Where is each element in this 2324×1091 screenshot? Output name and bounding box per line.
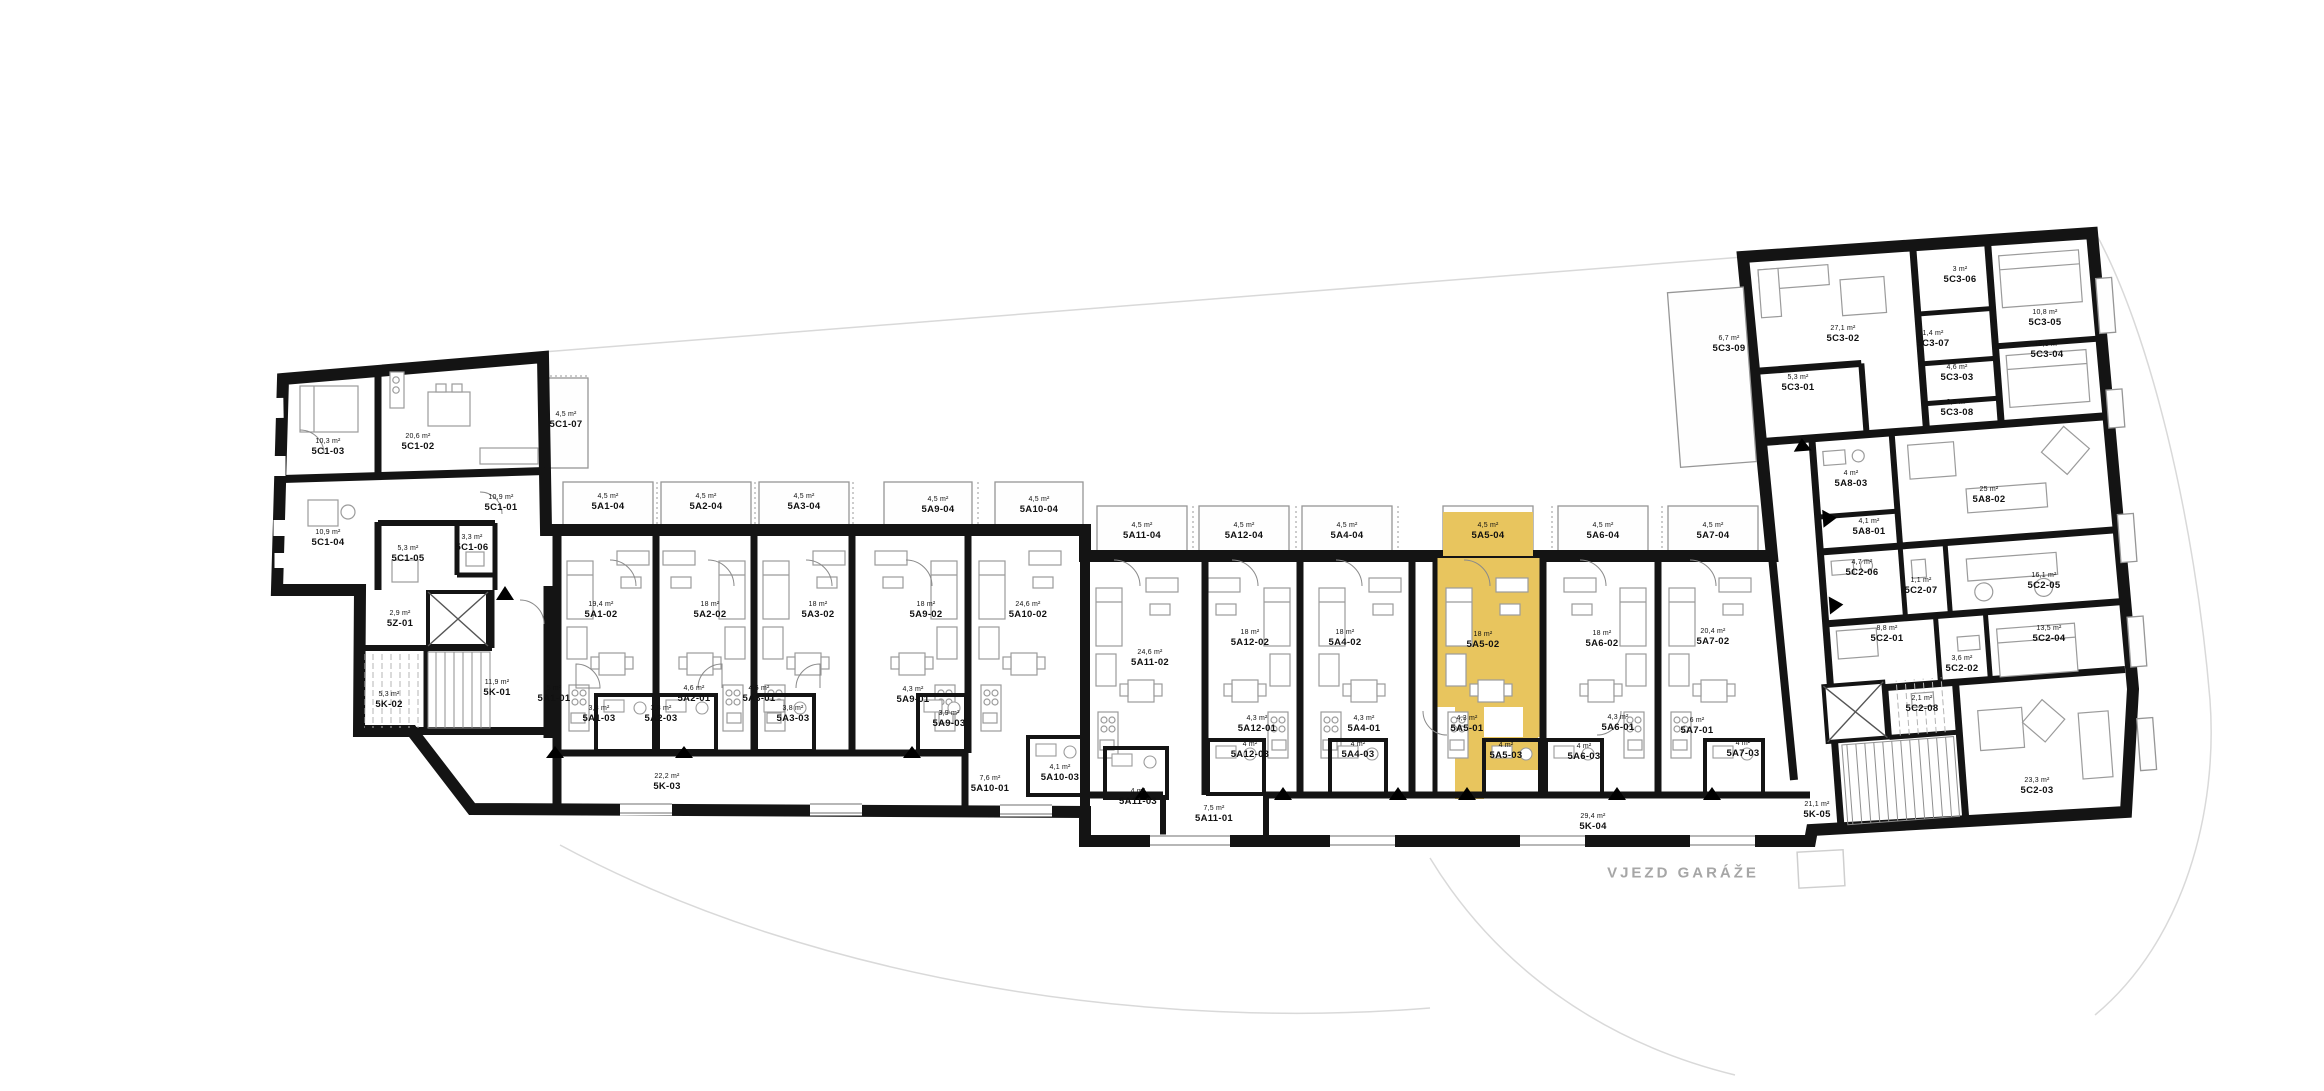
unit-code: 5A8-03 <box>1835 478 1868 489</box>
unit-area: 4,6 m² <box>748 685 769 693</box>
unit-area: 19,4 m² <box>588 601 613 609</box>
unit-label-5A6-03[interactable]: 4 m²5A6-03 <box>1568 743 1601 762</box>
unit-code: 5A5-01 <box>1451 723 1484 734</box>
unit-area: 24,6 m² <box>1137 649 1162 657</box>
unit-code: 5C1-02 <box>402 441 435 452</box>
unit-area: 20,6 m² <box>405 433 430 441</box>
unit-label-5C2-06[interactable]: 4,7 m²5C2-06 <box>1846 559 1879 578</box>
unit-code: 5A5-04 <box>1472 530 1505 541</box>
unit-label-5C3-02[interactable]: 27,1 m²5C3-02 <box>1827 325 1860 344</box>
unit-label-5A12-02[interactable]: 18 m²5A12-02 <box>1231 629 1270 648</box>
unit-code: 5A11-01 <box>1195 813 1233 824</box>
unit-code: 5C2-07 <box>1905 585 1938 596</box>
unit-area: 4,5 m² <box>1477 522 1498 530</box>
unit-label-5C3-08[interactable]: 2,6 m²5C3-08 <box>1941 399 1974 418</box>
unit-code: 5C3-05 <box>2029 317 2062 328</box>
unit-area: 18 m² <box>809 601 828 609</box>
unit-area: 18 m² <box>701 601 720 609</box>
unit-area: 4,1 m² <box>1049 764 1070 772</box>
unit-label-5K-02[interactable]: 5,3 m²5K-02 <box>375 691 402 710</box>
unit-area: 1,1 m² <box>1910 577 1931 585</box>
unit-area: 4 m² <box>1736 740 1751 748</box>
unit-code: 5A6-01 <box>1602 722 1635 733</box>
unit-label-5A9-03[interactable]: 3,9 m²5A9-03 <box>933 710 966 729</box>
unit-area: 10,3 m² <box>315 438 340 446</box>
unit-code: 5A12-04 <box>1225 530 1264 541</box>
unit-label-5A8-02[interactable]: 25 m²5A8-02 <box>1973 486 2006 505</box>
unit-label-5A6-01[interactable]: 4,3 m²5A6-01 <box>1602 714 1635 733</box>
unit-label-5A3-01[interactable]: 4,6 m²5A3-01 <box>743 685 776 704</box>
unit-label-5A4-03[interactable]: 4 m²5A4-03 <box>1342 741 1375 760</box>
unit-label-5C1-03[interactable]: 10,3 m²5C1-03 <box>312 438 345 457</box>
unit-code: 5A6-02 <box>1586 638 1619 649</box>
unit-code: 5A1-02 <box>585 609 618 620</box>
unit-label-5C2-07[interactable]: 1,1 m²5C2-07 <box>1905 577 1938 596</box>
unit-code: 5A11-02 <box>1131 657 1169 668</box>
unit-code: 5A1-04 <box>592 501 625 512</box>
unit-label-5C1-01[interactable]: 10,9 m²5C1-01 <box>485 494 518 513</box>
unit-label-5A10-02[interactable]: 24,6 m²5A10-02 <box>1009 601 1048 620</box>
unit-label-5A5-01[interactable]: 4,3 m²5A5-01 <box>1451 715 1484 734</box>
unit-label-5A9-01[interactable]: 4,3 m²5A9-01 <box>897 686 930 705</box>
unit-area: 4,1 m² <box>1858 518 1879 526</box>
unit-label-5C3-04[interactable]: 10,8 m²5C3-04 <box>2031 341 2064 360</box>
unit-label-5A2-04[interactable]: 4,5 m²5A2-04 <box>690 493 723 512</box>
unit-label-5C2-05[interactable]: 16,1 m²5C2-05 <box>2028 572 2061 591</box>
unit-label-5A9-02[interactable]: 18 m²5A9-02 <box>910 601 943 620</box>
unit-area: 4,5 m² <box>927 496 948 504</box>
unit-area: 4,3 m² <box>1607 714 1628 722</box>
unit-area: 4,5 m² <box>555 411 576 419</box>
unit-code: 5A10-04 <box>1020 504 1059 515</box>
unit-label-5A2-03[interactable]: 3,8 m²5A2-03 <box>645 705 678 724</box>
unit-label-5A7-04[interactable]: 4,5 m²5A7-04 <box>1697 522 1730 541</box>
unit-code: 5K-05 <box>1803 809 1830 820</box>
unit-label-5C3-03[interactable]: 4,6 m²5C3-03 <box>1941 364 1974 383</box>
unit-code: 5C2-03 <box>2021 785 2054 796</box>
unit-area: 3,6 m² <box>1951 655 1972 663</box>
unit-code: 5A3-02 <box>802 609 835 620</box>
unit-code: 5C3-07 <box>1917 338 1950 349</box>
unit-area: 4,6 m² <box>1946 364 1967 372</box>
unit-area: 4 m² <box>1243 741 1258 749</box>
unit-label-5A10-04[interactable]: 4,5 m²5A10-04 <box>1020 496 1059 515</box>
unit-code: 5A7-01 <box>1681 725 1714 736</box>
garage-entrance-label: VJEZD GARÁŽE <box>1607 865 1759 882</box>
unit-label-5A1-02[interactable]: 19,4 m²5A1-02 <box>585 601 618 620</box>
unit-code: 5C2-02 <box>1946 663 1979 674</box>
unit-code: 5A9-03 <box>933 718 966 729</box>
unit-label-5A3-02[interactable]: 18 m²5A3-02 <box>802 601 835 620</box>
unit-label-5A3-03[interactable]: 3,8 m²5A3-03 <box>777 705 810 724</box>
unit-code: 5C3-03 <box>1941 372 1974 383</box>
unit-code: 5A10-03 <box>1041 772 1080 783</box>
unit-code: 5C3-06 <box>1944 274 1977 285</box>
unit-code: 5A8-01 <box>1853 526 1886 537</box>
unit-area: 18 m² <box>1593 630 1612 638</box>
unit-label-5C1-05[interactable]: 5,3 m²5C1-05 <box>392 545 425 564</box>
unit-label-5A7-02[interactable]: 20,4 m²5A7-02 <box>1697 628 1730 647</box>
unit-area: 4 m² <box>1844 470 1859 478</box>
unit-area: 23,3 m² <box>2024 777 2049 785</box>
unit-label-5C2-03[interactable]: 23,3 m²5C2-03 <box>2021 777 2054 796</box>
unit-label-5K-03[interactable]: 22,2 m²5K-03 <box>653 773 680 792</box>
unit-label-5A11-03[interactable]: 4 m²5A11-03 <box>1119 788 1157 807</box>
unit-area: 18 m² <box>1336 629 1355 637</box>
unit-area: 3,8 m² <box>588 705 609 713</box>
unit-area: 20,4 m² <box>1700 628 1725 636</box>
unit-code: 5A12-03 <box>1231 749 1270 760</box>
unit-code: 5A7-04 <box>1697 530 1730 541</box>
unit-code: 5C1-05 <box>392 553 425 564</box>
unit-label-5A5-02[interactable]: 18 m²5A5-02 <box>1467 631 1500 650</box>
unit-label-5A1-04[interactable]: 4,5 m²5A1-04 <box>592 493 625 512</box>
unit-area: 8,8 m² <box>1876 625 1897 633</box>
unit-area: 5,3 m² <box>1787 374 1808 382</box>
unit-area: 21,1 m² <box>1804 801 1829 809</box>
unit-area: 4 m² <box>1499 742 1514 750</box>
unit-code: 5A9-01 <box>897 694 930 705</box>
unit-code: 5A3-04 <box>788 501 821 512</box>
unit-label-5A12-03[interactable]: 4 m²5A12-03 <box>1231 741 1270 760</box>
unit-code: 5C3-08 <box>1941 407 1974 418</box>
unit-label-5A12-04[interactable]: 4,5 m²5A12-04 <box>1225 522 1264 541</box>
unit-area: 5,3 m² <box>397 545 418 553</box>
unit-area: 3 m² <box>1953 266 1968 274</box>
unit-label-5C1-02[interactable]: 20,6 m²5C1-02 <box>402 433 435 452</box>
unit-code: 5C2-06 <box>1846 567 1879 578</box>
unit-code: 5C2-05 <box>2028 580 2061 591</box>
unit-code: 5K-01 <box>483 687 510 698</box>
unit-area: 2,1 m² <box>1911 695 1932 703</box>
unit-area: 4,5 m² <box>1028 496 1049 504</box>
unit-area: 4 m² <box>1577 743 1592 751</box>
unit-label-5C3-01[interactable]: 5,3 m²5C3-01 <box>1782 374 1815 393</box>
unit-area: 10,8 m² <box>2032 309 2057 317</box>
unit-labels-layer: 10,3 m²5C1-0320,6 m²5C1-024,5 m²5C1-0710… <box>0 0 2324 1091</box>
unit-code: 5A9-02 <box>910 609 943 620</box>
unit-label-5C2-04[interactable]: 13,5 m²5C2-04 <box>2033 625 2066 644</box>
unit-code: 5K-02 <box>375 699 402 710</box>
unit-label-5A7-01[interactable]: 6 m²5A7-01 <box>1681 717 1714 736</box>
unit-code: 5A2-03 <box>645 713 678 724</box>
unit-area: 4,3 m² <box>1456 715 1477 723</box>
unit-label-5A12-01[interactable]: 4,3 m²5A12-01 <box>1238 715 1277 734</box>
unit-label-5C1-06[interactable]: 3,3 m²5C1-06 <box>456 534 489 553</box>
unit-label-5A4-04[interactable]: 4,5 m²5A4-04 <box>1331 522 1364 541</box>
unit-label-5A5-03[interactable]: 4 m²5A5-03 <box>1490 742 1523 761</box>
unit-label-5A11-02[interactable]: 24,6 m²5A11-02 <box>1131 649 1169 668</box>
unit-area: 10,8 m² <box>2034 341 2059 349</box>
unit-area: 4,5 m² <box>1336 522 1357 530</box>
unit-code: 5A4-04 <box>1331 530 1364 541</box>
unit-code: 5K-03 <box>653 781 680 792</box>
unit-label-5A4-02[interactable]: 18 m²5A4-02 <box>1329 629 1362 648</box>
unit-label-5A10-03[interactable]: 4,1 m²5A10-03 <box>1041 764 1080 783</box>
unit-area: 27,1 m² <box>1830 325 1855 333</box>
unit-code: 5A3-01 <box>743 693 776 704</box>
unit-area: 10,9 m² <box>315 529 340 537</box>
unit-code: 5Z-01 <box>387 618 413 629</box>
unit-area: 4,5 m² <box>793 493 814 501</box>
unit-area: 24,6 m² <box>1015 601 1040 609</box>
unit-code: 5A3-03 <box>777 713 810 724</box>
unit-label-5C3-06[interactable]: 3 m²5C3-06 <box>1944 266 1977 285</box>
unit-label-5K-04[interactable]: 29,4 m²5K-04 <box>1579 813 1606 832</box>
unit-area: 4,5 m² <box>695 493 716 501</box>
unit-code: 5A6-03 <box>1568 751 1601 762</box>
unit-label-5C3-05[interactable]: 10,8 m²5C3-05 <box>2029 309 2062 328</box>
unit-code: 5C3-04 <box>2031 349 2064 360</box>
unit-label-5A8-01[interactable]: 4,1 m²5A8-01 <box>1853 518 1886 537</box>
unit-label-5A8-03[interactable]: 4 m²5A8-03 <box>1835 470 1868 489</box>
unit-area: 4,5 m² <box>1702 522 1723 530</box>
unit-area: 4,5 m² <box>1233 522 1254 530</box>
unit-code: 5A5-03 <box>1490 750 1523 761</box>
unit-area: 4,3 m² <box>1246 715 1267 723</box>
unit-area: 25 m² <box>1980 486 1999 494</box>
unit-area: 1,4 m² <box>1922 330 1943 338</box>
unit-code: 5A9-04 <box>922 504 955 515</box>
unit-code: 5C1-07 <box>550 419 583 430</box>
unit-code: 5C2-04 <box>2033 633 2066 644</box>
unit-code: 5A12-01 <box>1238 723 1277 734</box>
unit-code: 5A10-01 <box>971 783 1010 794</box>
unit-area: 4 m² <box>1131 788 1146 796</box>
unit-area: 29,4 m² <box>1580 813 1605 821</box>
unit-area: 11,9 m² <box>485 679 510 687</box>
unit-area: 13,5 m² <box>2036 625 2061 633</box>
unit-area: 4,6 m² <box>683 685 704 693</box>
unit-code: 5A4-01 <box>1348 723 1381 734</box>
unit-code: 5A7-03 <box>1727 748 1760 759</box>
unit-area: 5,3 m² <box>378 691 399 699</box>
unit-code: 5C3-01 <box>1782 382 1815 393</box>
unit-label-5A11-04[interactable]: 4,5 m²5A11-04 <box>1123 522 1161 541</box>
unit-code: 5A5-02 <box>1467 639 1500 650</box>
unit-code: 5A11-03 <box>1119 796 1157 807</box>
unit-code: 5A7-02 <box>1697 636 1730 647</box>
unit-label-5A6-04[interactable]: 4,5 m²5A6-04 <box>1587 522 1620 541</box>
unit-area: 22,2 m² <box>654 773 679 781</box>
unit-code: 5C1-03 <box>312 446 345 457</box>
unit-code: 5C1-01 <box>485 502 518 513</box>
unit-label-5A2-02[interactable]: 18 m²5A2-02 <box>694 601 727 620</box>
unit-area: 18 m² <box>1474 631 1493 639</box>
unit-area: 4,5 m² <box>597 493 618 501</box>
unit-code: 5C2-01 <box>1871 633 1904 644</box>
unit-area: 7,5 m² <box>1203 805 1224 813</box>
unit-label-5K-01[interactable]: 11,9 m²5K-01 <box>483 679 510 698</box>
unit-label-5A3-04[interactable]: 4,5 m²5A3-04 <box>788 493 821 512</box>
floor-plan-page: 10,3 m²5C1-0320,6 m²5C1-024,5 m²5C1-0710… <box>0 0 2324 1091</box>
unit-label-5A6-02[interactable]: 18 m²5A6-02 <box>1586 630 1619 649</box>
unit-label-5A11-01[interactable]: 7,5 m²5A11-01 <box>1195 805 1233 824</box>
unit-code: 5A2-04 <box>690 501 723 512</box>
unit-code: 5C3-09 <box>1713 343 1746 354</box>
unit-label-5A5-04[interactable]: 4,5 m²5A5-04 <box>1472 522 1505 541</box>
unit-label-5C1-04[interactable]: 10,9 m²5C1-04 <box>312 529 345 548</box>
unit-code: 5C1-06 <box>456 542 489 553</box>
unit-code: 5A6-04 <box>1587 530 1620 541</box>
unit-code: 5C3-02 <box>1827 333 1860 344</box>
unit-area: 3,8 m² <box>650 705 671 713</box>
unit-area: 4,3 m² <box>1353 715 1374 723</box>
unit-area: 4 m² <box>1351 741 1366 749</box>
unit-area: 7,6 m² <box>979 775 1000 783</box>
unit-area: 6 m² <box>1690 717 1705 725</box>
unit-area: 4,3 m² <box>902 686 923 694</box>
unit-code: 5A4-03 <box>1342 749 1375 760</box>
unit-label-5A7-03[interactable]: 4 m²5A7-03 <box>1727 740 1760 759</box>
unit-label-5A4-01[interactable]: 4,3 m²5A4-01 <box>1348 715 1381 734</box>
unit-label-5C2-01[interactable]: 8,8 m²5C2-01 <box>1871 625 1904 644</box>
unit-label-5A10-01[interactable]: 7,6 m²5A10-01 <box>971 775 1010 794</box>
unit-label-5K-05[interactable]: 21,1 m²5K-05 <box>1803 801 1830 820</box>
unit-label-5C3-07[interactable]: 1,4 m²5C3-07 <box>1917 330 1950 349</box>
unit-label-5C1-07[interactable]: 4,5 m²5C1-07 <box>550 411 583 430</box>
unit-label-5A1-01[interactable]: 5 m²5A1-01 <box>538 685 571 704</box>
unit-area: 3,3 m² <box>461 534 482 542</box>
unit-area: 18 m² <box>917 601 936 609</box>
unit-area: 18 m² <box>1241 629 1260 637</box>
unit-area: 4,5 m² <box>1131 522 1152 530</box>
unit-area: 4,5 m² <box>1592 522 1613 530</box>
unit-area: 2,9 m² <box>389 610 410 618</box>
unit-code: 5A1-01 <box>538 693 571 704</box>
unit-label-5C2-02[interactable]: 3,6 m²5C2-02 <box>1946 655 1979 674</box>
unit-code: 5A12-02 <box>1231 637 1270 648</box>
unit-area: 3,9 m² <box>938 710 959 718</box>
unit-area: 3,8 m² <box>782 705 803 713</box>
unit-area: 16,1 m² <box>2031 572 2056 580</box>
unit-code: 5A2-01 <box>678 693 711 704</box>
unit-code: 5A10-02 <box>1009 609 1048 620</box>
unit-area: 2,6 m² <box>1946 399 1967 407</box>
unit-code: 5A8-02 <box>1973 494 2006 505</box>
unit-area: 4,7 m² <box>1851 559 1872 567</box>
unit-code: 5A11-04 <box>1123 530 1161 541</box>
unit-area: 6,7 m² <box>1718 335 1739 343</box>
unit-area: 10,9 m² <box>488 494 513 502</box>
unit-code: 5C1-04 <box>312 537 345 548</box>
unit-code: 5A2-02 <box>694 609 727 620</box>
unit-code: 5C2-08 <box>1906 703 1939 714</box>
unit-label-5A2-01[interactable]: 4,6 m²5A2-01 <box>678 685 711 704</box>
unit-label-5A1-03[interactable]: 3,8 m²5A1-03 <box>583 705 616 724</box>
unit-label-5A9-04[interactable]: 4,5 m²5A9-04 <box>922 496 955 515</box>
unit-label-5C3-09[interactable]: 6,7 m²5C3-09 <box>1713 335 1746 354</box>
unit-area: 5 m² <box>547 685 562 693</box>
unit-label-5C2-08[interactable]: 2,1 m²5C2-08 <box>1906 695 1939 714</box>
unit-code: 5K-04 <box>1579 821 1606 832</box>
unit-code: 5A4-02 <box>1329 637 1362 648</box>
unit-code: 5A1-03 <box>583 713 616 724</box>
unit-label-5Z-01[interactable]: 2,9 m²5Z-01 <box>387 610 413 629</box>
